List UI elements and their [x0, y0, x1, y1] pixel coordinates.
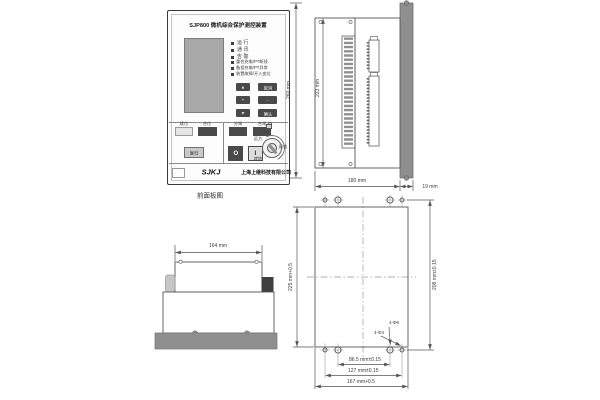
company-name: 上海上继科技有限公司	[241, 171, 271, 176]
rotary-local-label: 就地	[252, 157, 265, 161]
keypad-button-confirm: 确认	[258, 109, 277, 117]
lock-icon-body	[266, 124, 272, 129]
panel-plate	[400, 3, 413, 178]
brand-logo: SJKJ	[189, 169, 234, 177]
divider	[223, 122, 224, 163]
connector-block-bottom	[369, 76, 379, 146]
mounting-holes	[323, 197, 404, 353]
side-view: 260 mm 223 mm 180 mm 19 mm	[285, 0, 460, 200]
dim-case-width: 164 mm	[203, 244, 233, 249]
dim-cutout-width: 167 mm+0.5	[346, 380, 376, 385]
front-view-caption: 前面板图	[191, 193, 230, 200]
dim-hole-spacing-h2: 127 mm±0.15	[348, 369, 378, 374]
divider	[169, 163, 288, 164]
alarm-led-icon	[231, 61, 234, 64]
top-view-drawing	[150, 235, 290, 365]
reset-button: 复归	[184, 147, 204, 158]
status-led-icon	[231, 56, 234, 59]
status-led-label: 通 讯	[237, 48, 248, 53]
keypad-button-down: ▼	[236, 109, 250, 117]
callout-phi4: 4-Φ4	[366, 331, 393, 336]
rear-block	[262, 277, 274, 292]
trip-indicator	[175, 127, 193, 136]
alarm-led-icon	[231, 67, 234, 70]
status-led-icon	[231, 42, 234, 45]
alarm-led-label: 重合充电/PT断线	[236, 60, 268, 64]
cutout-view: 225 mm+0.5 208 mm±0.15 86.5 mm±0.15 127 …	[285, 195, 465, 400]
rotary-remote-label: 远方	[252, 137, 265, 141]
panel-flange	[155, 333, 277, 349]
front-panel-view: SJP800 微机综合保护测控装置 运 行 通 讯 告 警 重合充电/PT断线 …	[167, 10, 290, 202]
open-label: 分闸	[232, 122, 245, 126]
drawing-sheet: SJP800 微机综合保护测控装置 运 行 通 讯 告 警 重合充电/PT断线 …	[0, 0, 600, 400]
keypad-button-up: ▲	[236, 83, 250, 91]
connector-block-top	[369, 40, 379, 72]
status-led-label: 运 行	[237, 41, 248, 46]
centerlines	[307, 197, 416, 357]
alarm-led-icon	[231, 73, 234, 76]
side-clip	[166, 275, 176, 292]
lcd-screen	[184, 38, 224, 113]
close-indicator	[198, 127, 217, 136]
status-led-icon	[231, 49, 234, 52]
keypad-button-plus: +	[236, 96, 250, 104]
dim-hole-spacing-v: 208 mm±0.15	[433, 260, 438, 290]
dim-total-height: 260 mm	[287, 75, 292, 105]
trip-label: 跳位	[178, 122, 191, 126]
open-button: O	[228, 146, 243, 161]
side-view-drawing	[285, 0, 460, 200]
dim-case-depth: 180 mm	[342, 179, 372, 184]
top-view: 164 mm	[150, 235, 290, 365]
dim-panel-thickness: 19 mm	[415, 185, 445, 190]
keypad-button-cancel: 取消	[258, 83, 277, 91]
open-op-indicator	[229, 127, 247, 136]
dim-cutout-height: 225 mm+0.5	[289, 262, 294, 292]
case-outline	[315, 18, 400, 168]
alarm-led-label: 备投充电/PT异常	[236, 66, 268, 70]
cert-box	[172, 168, 185, 178]
callout-phi6: 4-Φ6	[381, 321, 408, 326]
alarm-led-label: 装置故障/开入变位	[236, 72, 271, 76]
hole-centerlines	[321, 195, 407, 378]
keypad-button-minus: -	[258, 96, 277, 104]
case-top-outline	[175, 262, 262, 292]
dim-hole-spacing-h1: 86.5 mm±0.15	[349, 358, 379, 363]
case-body-outline	[163, 292, 274, 333]
dim-case-height: 223 mm	[316, 73, 321, 103]
close-label: 合位	[201, 122, 214, 126]
device-title: SJP800 微机综合保护测控装置	[166, 23, 289, 29]
